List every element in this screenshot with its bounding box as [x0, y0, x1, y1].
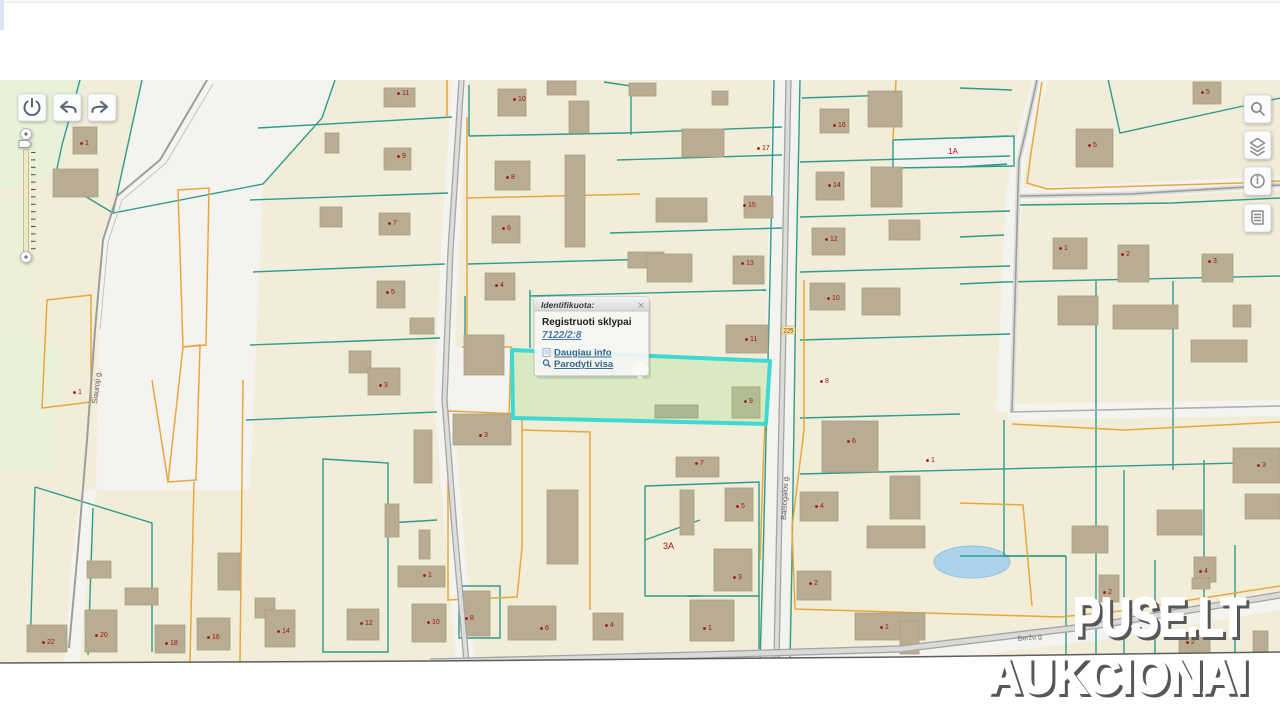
svg-text:10: 10 [518, 96, 526, 103]
svg-text:3: 3 [1213, 258, 1217, 265]
svg-text:1A: 1A [948, 147, 958, 156]
svg-text:Identifikuota:: Identifikuota: [541, 300, 595, 310]
svg-text:17: 17 [762, 145, 770, 152]
svg-text:14: 14 [833, 182, 841, 189]
svg-text:6: 6 [852, 438, 856, 445]
svg-text:5: 5 [1093, 142, 1097, 149]
svg-text:12: 12 [830, 236, 838, 243]
svg-text:1: 1 [708, 625, 712, 632]
svg-text:16: 16 [838, 122, 846, 129]
svg-text:8: 8 [825, 378, 829, 385]
svg-text:1: 1 [885, 624, 889, 631]
svg-text:5: 5 [391, 289, 395, 296]
svg-text:11: 11 [402, 90, 409, 97]
svg-text:10: 10 [832, 295, 840, 302]
svg-text:18: 18 [170, 640, 178, 647]
svg-text:3: 3 [738, 574, 742, 581]
svg-text:13: 13 [746, 260, 754, 267]
svg-text:1: 1 [428, 572, 432, 579]
svg-text:4: 4 [610, 622, 614, 629]
svg-text:8: 8 [470, 615, 474, 622]
svg-text:Daugiau info: Daugiau info [554, 348, 612, 359]
svg-text:Parodyti visa: Parodyti visa [554, 359, 614, 370]
svg-text:2: 2 [814, 580, 818, 587]
svg-text:8: 8 [511, 174, 515, 181]
svg-text:3A: 3A [663, 541, 674, 551]
svg-text:7122/2:8: 7122/2:8 [542, 330, 582, 341]
svg-text:6: 6 [507, 225, 511, 232]
svg-text:1: 1 [1064, 245, 1068, 252]
svg-text:20: 20 [100, 632, 108, 639]
svg-text:22: 22 [47, 639, 55, 646]
svg-text:1: 1 [78, 389, 82, 396]
svg-text:12: 12 [365, 620, 373, 627]
svg-text:5: 5 [741, 503, 745, 510]
svg-text:7: 7 [393, 220, 397, 227]
svg-text:16: 16 [212, 634, 220, 641]
svg-text:4: 4 [500, 282, 504, 289]
svg-text:9: 9 [749, 398, 753, 405]
svg-text:✕: ✕ [637, 301, 645, 311]
svg-text:14: 14 [282, 628, 290, 635]
svg-text:6: 6 [545, 625, 549, 632]
svg-text:PUSE.LT: PUSE.LT [1073, 586, 1246, 648]
svg-text:10: 10 [432, 619, 440, 626]
svg-text:15: 15 [748, 202, 756, 209]
svg-text:1: 1 [931, 457, 935, 464]
svg-text:1: 1 [85, 140, 89, 147]
svg-text:2: 2 [1126, 251, 1130, 258]
svg-text:225: 225 [783, 329, 794, 335]
svg-text:3: 3 [484, 432, 488, 439]
svg-text:5: 5 [1206, 89, 1210, 96]
svg-text:4: 4 [820, 503, 824, 510]
svg-text:9: 9 [402, 153, 406, 160]
svg-text:11: 11 [750, 336, 757, 343]
svg-text:Registruoti sklypai: Registruoti sklypai [542, 317, 632, 328]
svg-text:3: 3 [384, 382, 388, 389]
svg-text:AUKCIONAI: AUKCIONAI [988, 648, 1248, 704]
svg-text:7: 7 [700, 460, 704, 467]
svg-text:3: 3 [1262, 462, 1266, 469]
svg-text:4: 4 [1204, 568, 1208, 575]
